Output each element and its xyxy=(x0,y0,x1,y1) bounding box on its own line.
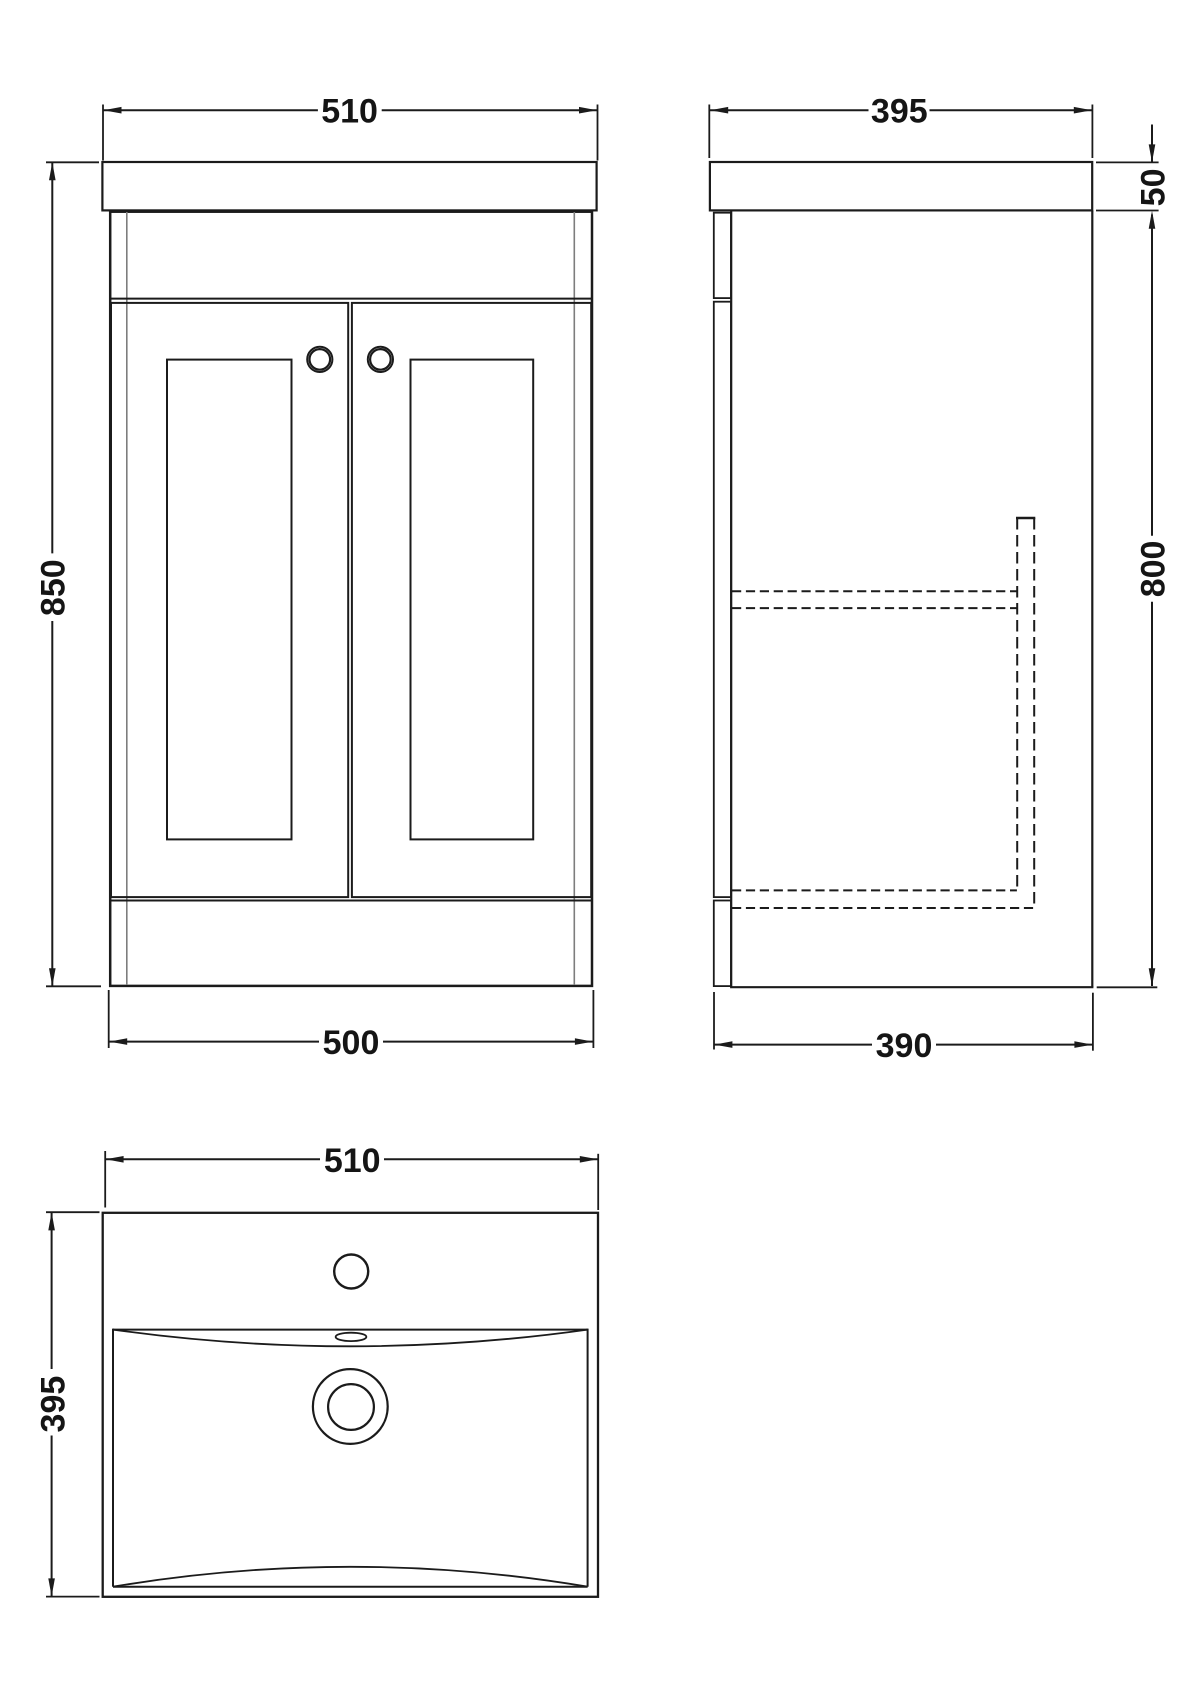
svg-text:395: 395 xyxy=(34,1376,72,1433)
svg-text:500: 500 xyxy=(323,1024,380,1062)
svg-text:510: 510 xyxy=(324,1142,381,1180)
svg-text:850: 850 xyxy=(35,559,73,616)
svg-text:50: 50 xyxy=(1135,168,1173,206)
svg-text:510: 510 xyxy=(321,93,378,131)
svg-text:395: 395 xyxy=(871,93,928,131)
svg-text:390: 390 xyxy=(876,1027,933,1065)
svg-text:800: 800 xyxy=(1135,541,1173,598)
